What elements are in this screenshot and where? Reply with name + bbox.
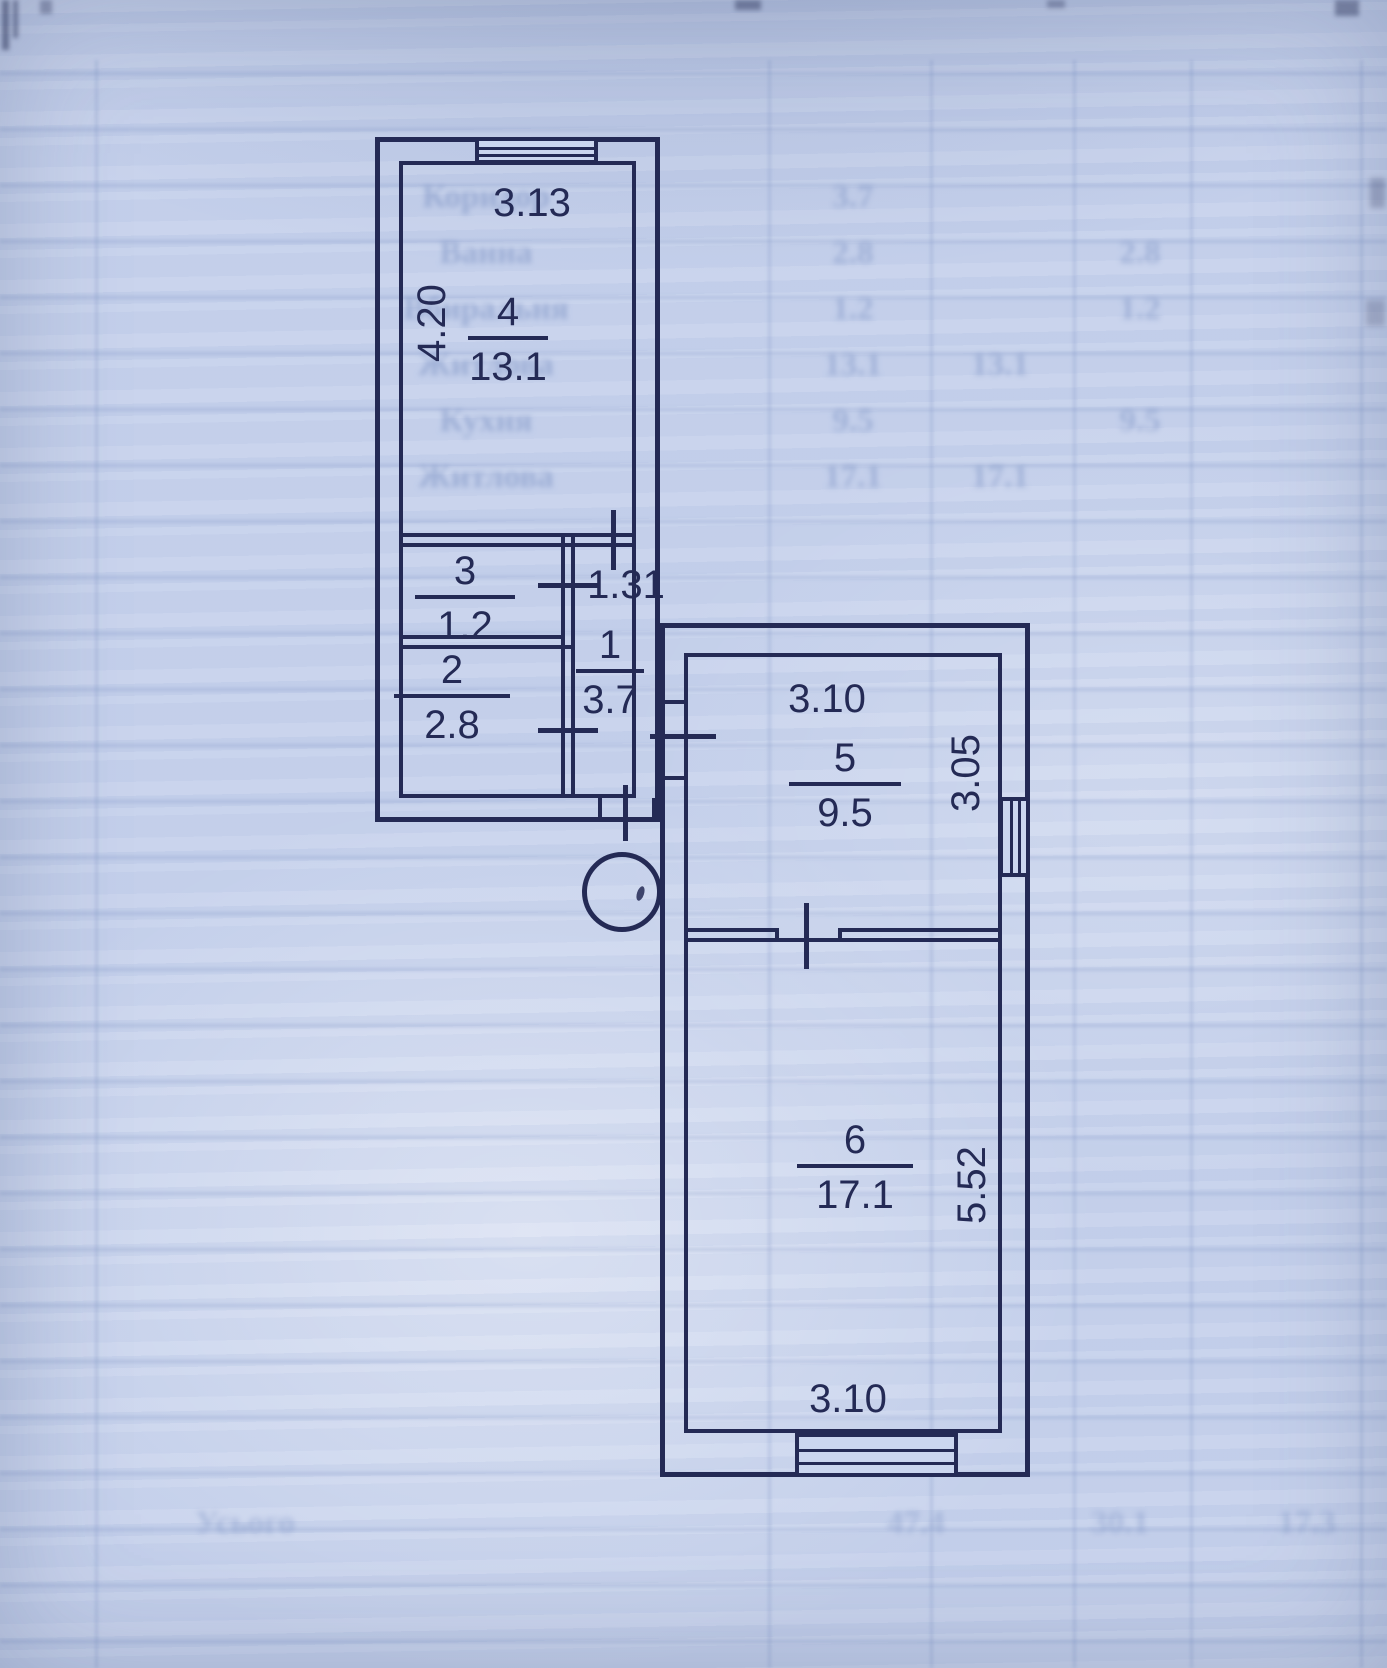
ghost-total-value: 47.4 — [856, 1505, 976, 1542]
room-label-3: 3 1.2 — [405, 551, 525, 646]
ghost-area-value: 9.5 — [1080, 403, 1200, 440]
room-number: 6 — [797, 1120, 913, 1168]
ghost-area-value: 13.1 — [940, 347, 1060, 384]
ghost-grid-line — [0, 1640, 1387, 1643]
ghost-area-value: 1.2 — [1080, 291, 1200, 328]
ghost-area-value: 17.1 — [793, 459, 913, 496]
door-opening-tick — [623, 785, 628, 841]
ghost-grid-line — [0, 352, 1387, 355]
door-jamb — [598, 798, 602, 822]
room-area: 3.7 — [550, 680, 670, 720]
door-opening-tick — [538, 728, 598, 733]
paper-smudge — [40, 0, 52, 14]
paper-smudge — [1335, 0, 1359, 16]
paper-smudge — [13, 0, 18, 38]
door-jamb — [660, 776, 684, 780]
ghost-area-value: 2.8 — [793, 235, 913, 272]
room-number: 2 — [394, 650, 510, 698]
door-opening-tick — [650, 734, 716, 739]
room-area: 17.1 — [795, 1175, 915, 1215]
door-jamb — [775, 928, 779, 942]
wall-room5-room6 — [838, 928, 1002, 932]
ghost-area-value: 2.8 — [1080, 235, 1200, 272]
ghost-area-value: 3.7 — [793, 179, 913, 216]
ghost-total-label: Усього — [160, 1505, 330, 1542]
room-number: 5 — [789, 738, 901, 786]
room-label-6: 6 17.1 — [795, 1120, 915, 1215]
wall-room4-room3 — [399, 543, 636, 547]
ghost-grid-line — [0, 184, 1387, 187]
paper-smudge — [1370, 178, 1385, 208]
dimension-room6-width: 3.10 — [768, 1376, 928, 1422]
room-label-2: 2 2.8 — [392, 650, 512, 745]
door-opening-tick — [611, 510, 616, 570]
ghost-grid-line — [0, 1584, 1387, 1587]
scanned-floor-plan-page: Коридор3.7Ванна2.82.8Вбиральня1.21.2Житл… — [0, 0, 1387, 1668]
ghost-grid-line — [0, 72, 1387, 75]
window-hatch-top — [475, 137, 598, 164]
window-hatch-right — [999, 797, 1030, 877]
paper-smudge — [1366, 300, 1385, 326]
dimension-room4-width: 3.13 — [452, 180, 612, 226]
ghost-grid-line — [0, 520, 1387, 523]
paper-smudge — [2, 0, 9, 50]
ghost-grid-line — [1073, 60, 1076, 1668]
door-opening-tick — [804, 903, 809, 969]
room-number: 4 — [468, 292, 548, 340]
room-number: 1 — [576, 625, 644, 673]
room-label-1: 1 3.7 — [550, 625, 670, 720]
paper-smudge — [735, 0, 761, 10]
paper-smudge — [1047, 0, 1065, 8]
ghost-area-value: 1.2 — [793, 291, 913, 328]
room-area: 2.8 — [392, 705, 512, 745]
ghost-area-value: 17.1 — [940, 459, 1060, 496]
ghost-grid-line — [0, 128, 1387, 131]
door-jamb — [838, 928, 842, 942]
wall-room4-room3 — [399, 533, 636, 537]
dimension-room5-height: 3.05 — [943, 693, 989, 853]
door-jamb — [652, 798, 656, 822]
ghost-area-value: 13.1 — [793, 347, 913, 384]
wall-room5-room6 — [684, 928, 775, 932]
window-hatch-bottom — [795, 1433, 958, 1477]
ghost-grid-line — [1360, 60, 1363, 1668]
ghost-grid-line — [0, 464, 1387, 467]
dimension-room6-height: 5.52 — [949, 1105, 995, 1265]
dimension-hall-width: 1.31 — [551, 562, 701, 608]
room-label-4: 4 13.1 — [448, 292, 568, 387]
room-area: 9.5 — [785, 793, 905, 833]
room-area: 13.1 — [448, 347, 568, 387]
room-label-5: 5 9.5 — [785, 738, 905, 833]
ghost-area-value: 9.5 — [793, 403, 913, 440]
ghost-grid-line — [95, 60, 98, 1668]
dimension-room5-width: 3.10 — [747, 676, 907, 722]
stamp-circle — [582, 852, 662, 932]
room-number: 3 — [415, 551, 515, 599]
ghost-total-value: 17.3 — [1247, 1505, 1367, 1542]
wall-room5-room6 — [684, 938, 1002, 942]
room-area: 1.2 — [405, 606, 525, 646]
ghost-total-value: 30.1 — [1060, 1505, 1180, 1542]
